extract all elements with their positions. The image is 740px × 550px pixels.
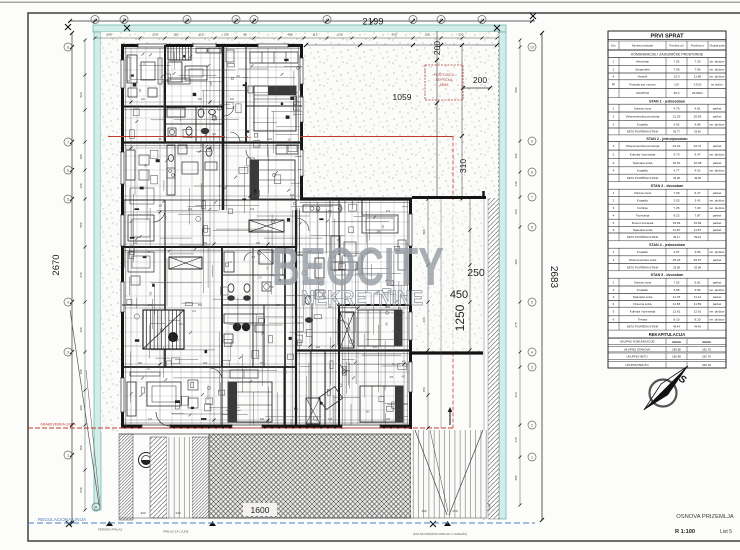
svg-text:8: 8 [531, 170, 533, 174]
svg-text:430: 430 [79, 327, 83, 332]
svg-text:Višenamenska prostorija: Višenamenska prostorija [626, 144, 660, 148]
svg-text:Kupatilo: Kupatilo [637, 122, 648, 126]
svg-text:200: 200 [432, 41, 442, 55]
svg-text:B: B [123, 18, 126, 22]
svg-text:1059: 1059 [393, 92, 412, 102]
svg-text:Dnevna soba: Dnevna soba [633, 302, 652, 306]
svg-text:REGULACIONA LINIJA: REGULACIONA LINIJA [38, 517, 87, 522]
svg-text:192.76: 192.76 [702, 347, 711, 351]
svg-text:305: 305 [198, 98, 203, 101]
svg-text:GRAĐEVINSKA LINIJA: GRAĐEVINSKA LINIJA [40, 423, 76, 427]
svg-text:UKUPNO: UKUPNO [636, 91, 650, 95]
svg-text:UKUPNO BRUTO: UKUPNO BRUTO [625, 363, 649, 367]
svg-text:152: 152 [173, 33, 178, 37]
svg-text:29.80/m: 29.80/m [692, 91, 704, 95]
svg-text:3: 3 [613, 206, 615, 210]
svg-text:1: 1 [613, 250, 615, 254]
svg-text:K: K [440, 18, 443, 22]
svg-text:240.03: 240.03 [702, 363, 711, 367]
svg-text:STAN 5 - dvosoban: STAN 5 - dvosoban [651, 273, 684, 277]
svg-text:4: 4 [531, 350, 533, 354]
svg-text:1: 1 [613, 106, 615, 110]
svg-text:49.38: 49.38 [694, 176, 701, 180]
svg-text:228: 228 [203, 362, 208, 365]
svg-text:520: 520 [79, 92, 83, 97]
svg-text:11.87: 11.87 [673, 228, 681, 232]
svg-text:parket: parket [713, 214, 722, 218]
svg-text:Ozn.: Ozn. [611, 44, 617, 48]
svg-text:ter. pločice: ter. pločice [710, 288, 725, 292]
svg-text:parket: parket [713, 302, 722, 306]
svg-text:133: 133 [250, 208, 255, 211]
svg-text:Kupatilo: Kupatilo [637, 288, 648, 292]
svg-text:6.81: 6.81 [694, 280, 700, 284]
svg-text:2.00: 2.00 [674, 83, 679, 86]
svg-text:6: 6 [67, 168, 69, 172]
svg-text:Vetrobran: Vetrobran [636, 60, 650, 64]
svg-text:6: 6 [531, 225, 533, 229]
svg-text:4.77: 4.77 [673, 169, 679, 173]
svg-text:Ulazna zona: Ulazna zona [634, 280, 651, 284]
svg-text:113: 113 [313, 33, 318, 37]
svg-text:300: 300 [79, 405, 83, 410]
svg-text:59.43: 59.43 [694, 235, 701, 239]
svg-text:3.55: 3.55 [673, 288, 679, 292]
svg-text:176: 176 [148, 418, 153, 421]
svg-text:800: 800 [422, 229, 426, 234]
svg-text:30.77: 30.77 [673, 130, 680, 134]
svg-text:4: 4 [613, 75, 615, 79]
svg-text:Terasa: Terasa [638, 317, 648, 321]
svg-text:49.44: 49.44 [673, 325, 680, 329]
svg-text:430: 430 [391, 33, 396, 37]
svg-text:JAMA: JAMA [439, 83, 449, 87]
svg-text:Površina m2: Površina m2 [669, 44, 684, 48]
svg-text:4: 4 [613, 169, 615, 173]
svg-text:165: 165 [514, 153, 518, 158]
svg-text:ter. pločice: ter. pločice [710, 250, 725, 254]
svg-text:29.60: 29.60 [694, 130, 701, 134]
svg-text:STAN 3 - dvosoban: STAN 3 - dvosoban [651, 184, 684, 188]
svg-text:Višenamenska prostorija: Višenamenska prostorija [626, 114, 660, 118]
svg-text:120: 120 [141, 98, 146, 101]
svg-text:410: 410 [230, 98, 235, 101]
svg-text:4.81: 4.81 [694, 106, 700, 110]
svg-text:364: 364 [203, 242, 208, 245]
svg-text:(KOLSKI PEŠAČKI PRILAZ U GARAŽ: (KOLSKI PEŠAČKI PRILAZ U GARAŽU) [413, 531, 467, 536]
svg-text:150: 150 [421, 509, 426, 513]
svg-text:11.87: 11.87 [694, 228, 702, 232]
svg-text:UKUPNO STANOVA: UKUPNO STANOVA [624, 347, 651, 351]
svg-text:Spavaća soba: Spavaća soba [633, 228, 653, 232]
svg-text:12.0: 12.0 [673, 75, 679, 79]
svg-text:Višenamenska soba: Višenamenska soba [629, 258, 657, 262]
svg-text:6.27: 6.27 [694, 191, 700, 195]
svg-text:110: 110 [133, 242, 138, 245]
svg-text:140: 140 [79, 183, 83, 188]
svg-text:A: A [94, 18, 97, 22]
svg-text:255: 255 [514, 475, 518, 480]
svg-text:2: 2 [531, 423, 533, 427]
svg-text:15.54: 15.54 [673, 221, 681, 225]
svg-text:49.17: 49.17 [673, 235, 680, 239]
svg-text:2: 2 [613, 152, 615, 156]
svg-text:SEPTIČKA: SEPTIČKA [436, 77, 454, 82]
svg-text:ter. pločice: ter. pločice [710, 169, 725, 173]
svg-text:180: 180 [79, 154, 83, 159]
svg-text:10: 10 [530, 45, 534, 49]
svg-text:2: 2 [613, 67, 615, 71]
svg-text:Spavaća soba: Spavaća soba [633, 295, 653, 299]
svg-text:340: 340 [140, 511, 145, 515]
svg-text:318: 318 [276, 304, 281, 307]
svg-text:2: 2 [613, 114, 615, 118]
svg-text:6: 6 [613, 228, 615, 232]
svg-text:196: 196 [148, 304, 153, 307]
svg-text:4.75: 4.75 [673, 106, 679, 110]
svg-text:4: 4 [613, 214, 615, 218]
svg-text:216: 216 [268, 138, 273, 141]
svg-text:21.29: 21.29 [673, 114, 681, 118]
svg-text:432: 432 [373, 346, 378, 349]
svg-text:12.61: 12.61 [694, 310, 702, 314]
svg-text:8: 8 [67, 45, 69, 49]
svg-text:STAN 1 - jednosoban: STAN 1 - jednosoban [649, 100, 685, 104]
svg-text:Kuhinja i trpezarija: Kuhinja i trpezarija [630, 152, 656, 156]
svg-text:J: J [412, 18, 414, 22]
svg-text:Kupatilo: Kupatilo [637, 250, 648, 254]
svg-text:2683: 2683 [548, 266, 559, 289]
svg-text:540: 540 [79, 487, 83, 492]
svg-text:Kupatilo: Kupatilo [637, 169, 648, 173]
svg-text:List 5: List 5 [720, 529, 732, 535]
svg-text:parket: parket [713, 191, 722, 195]
svg-text:390: 390 [514, 259, 518, 264]
svg-text:5: 5 [67, 197, 69, 201]
svg-text:450: 450 [450, 289, 468, 301]
svg-text:Trpezarija: Trpezarija [636, 214, 650, 218]
svg-text:22.47: 22.47 [694, 144, 702, 148]
svg-text:Namena prostorije: Namena prostorije [632, 44, 654, 48]
svg-text:parket: parket [713, 114, 722, 118]
svg-text:5: 5 [613, 221, 615, 225]
svg-text:ter. pločice: ter. pločice [710, 317, 725, 321]
svg-text:1: 1 [613, 191, 615, 195]
svg-text:1: 1 [613, 60, 615, 64]
svg-text:7.09: 7.09 [673, 191, 679, 195]
svg-text:Spavaća soba: Spavaća soba [633, 161, 653, 165]
svg-text:2670: 2670 [51, 254, 62, 275]
svg-text:130: 130 [223, 33, 228, 37]
svg-text:386: 386 [138, 362, 143, 365]
svg-text:3.41: 3.41 [694, 199, 700, 203]
svg-text:452: 452 [198, 304, 203, 307]
svg-text:ter. pločice: ter. pločice [710, 206, 725, 210]
svg-text:KOMUNIKACIJE I ZAJEDNIČKE PROS: KOMUNIKACIJE I ZAJEDNIČKE PROSTORIJE [631, 52, 704, 57]
svg-text:9: 9 [531, 139, 533, 143]
svg-text:1: 1 [531, 455, 533, 459]
svg-text:ter. pločice: ter. pločice [710, 75, 725, 79]
svg-text:195.80: 195.80 [672, 355, 681, 359]
svg-text:240: 240 [175, 511, 180, 515]
svg-text:Ulazna zona: Ulazna zona [634, 191, 651, 195]
svg-text:E: E [253, 18, 256, 22]
svg-text:25.23: 25.23 [673, 258, 681, 262]
svg-text:3.53: 3.53 [673, 199, 679, 203]
svg-text:L: L [481, 18, 483, 22]
svg-text:2.0100: 2.0100 [694, 83, 702, 86]
svg-text:ter. pločice: ter. pločice [710, 67, 725, 71]
svg-text:3: 3 [613, 161, 615, 165]
svg-text:ter. pločice: ter. pločice [710, 152, 725, 156]
svg-text:3: 3 [67, 350, 69, 354]
svg-text:1: 1 [613, 280, 615, 284]
svg-text:ter. pločice: ter. pločice [710, 310, 725, 314]
svg-text:3: 3 [613, 122, 615, 126]
svg-text:170: 170 [514, 437, 518, 442]
svg-text:Obrada poda: Obrada poda [709, 44, 725, 48]
svg-text:238: 238 [256, 242, 261, 245]
svg-text:1: 1 [67, 453, 69, 457]
svg-text:3: 3 [531, 365, 533, 369]
svg-text:7: 7 [67, 140, 69, 144]
svg-text:PRVI SPRAT: PRVI SPRAT [650, 33, 684, 39]
svg-text:11.59: 11.59 [694, 302, 702, 306]
svg-text:35.98: 35.98 [694, 265, 701, 269]
svg-text:4: 4 [613, 302, 615, 306]
svg-text:parket: parket [713, 106, 722, 110]
svg-text:Prostorije prat. namena: Prostorije prat. namena [630, 83, 657, 86]
svg-text:140: 140 [106, 33, 111, 37]
svg-text:UKUPNO NETO: UKUPNO NETO [626, 355, 648, 359]
svg-text:44.46: 44.46 [694, 325, 701, 329]
svg-text:475: 475 [386, 210, 391, 213]
svg-text:7.30: 7.30 [694, 60, 700, 64]
svg-text:Kuhinja: Kuhinja [637, 206, 648, 210]
svg-text:8.22: 8.22 [673, 214, 679, 218]
svg-text:NEKRETNINE: NEKRETNINE [301, 287, 423, 310]
svg-text:96: 96 [243, 33, 247, 37]
svg-text:118: 118 [328, 418, 333, 421]
svg-text:7.66: 7.66 [694, 67, 700, 71]
svg-text:PRILAZ ZA LJUDE: PRILAZ ZA LJUDE [163, 530, 188, 534]
svg-text:150: 150 [260, 362, 265, 365]
svg-text:29.07: 29.07 [694, 258, 702, 262]
svg-text:parket: parket [713, 295, 722, 299]
svg-text:230: 230 [458, 33, 463, 37]
svg-text:115: 115 [199, 33, 204, 37]
svg-text:340: 340 [260, 418, 265, 421]
svg-text:▬▬▬: ▬▬▬ [702, 340, 711, 344]
svg-text:6: 6 [613, 317, 615, 321]
svg-text:1600: 1600 [251, 505, 270, 515]
svg-text:STAN 2 - jednoiposoban: STAN 2 - jednoiposoban [646, 137, 687, 141]
svg-text:11.80: 11.80 [694, 75, 702, 79]
svg-text:24.22: 24.22 [673, 144, 681, 148]
svg-text:192.76: 192.76 [702, 355, 711, 359]
svg-text:2: 2 [613, 199, 615, 203]
svg-text:3.50: 3.50 [694, 288, 700, 292]
svg-text:4: 4 [67, 300, 69, 304]
svg-text:11.41: 11.41 [694, 295, 702, 299]
svg-text:7: 7 [531, 195, 533, 199]
svg-text:PEŠAČKI PRILAZ: PEŠAČKI PRILAZ [98, 527, 123, 532]
svg-text:10.38: 10.38 [694, 161, 702, 165]
svg-text:195.80: 195.80 [672, 347, 681, 351]
svg-text:5: 5 [531, 300, 533, 304]
svg-text:Površina st.: Površina st. [691, 44, 705, 48]
svg-text:Ulazna zona: Ulazna zona [634, 106, 651, 110]
svg-text:parket: parket [713, 144, 722, 148]
svg-text:ter. pločice: ter. pločice [710, 199, 725, 203]
svg-text:3: 3 [613, 295, 615, 299]
svg-text:8.10: 8.10 [673, 317, 679, 321]
svg-text:4.92: 4.92 [673, 122, 679, 126]
svg-text:7.87: 7.87 [694, 214, 700, 218]
svg-text:12.61: 12.61 [673, 310, 681, 314]
svg-text:ter. pločice: ter. pločice [710, 122, 725, 126]
svg-text:275: 275 [514, 322, 518, 327]
svg-text:parket: parket [713, 221, 722, 225]
svg-text:130: 130 [152, 33, 157, 37]
svg-text:7.90: 7.90 [673, 67, 679, 71]
svg-text:▬▬▬: ▬▬▬ [672, 340, 681, 344]
svg-text:parket: parket [713, 258, 722, 262]
svg-text:4.85: 4.85 [694, 250, 700, 254]
svg-text:450: 450 [287, 33, 292, 37]
svg-text:7.02: 7.02 [673, 60, 679, 64]
svg-text:310: 310 [514, 392, 518, 397]
svg-text:7.25: 7.25 [673, 206, 679, 210]
svg-text:150: 150 [422, 387, 426, 392]
svg-text:270: 270 [79, 272, 83, 277]
svg-text:8.10: 8.10 [694, 317, 700, 321]
svg-text:parket: parket [713, 280, 722, 284]
svg-text:200: 200 [473, 75, 487, 85]
svg-text:500: 500 [514, 87, 518, 92]
svg-text:2199: 2199 [362, 17, 383, 28]
svg-text:ter. pločice: ter. pločice [710, 60, 725, 64]
svg-text:2: 2 [613, 288, 615, 292]
svg-text:11.83: 11.83 [673, 302, 681, 306]
svg-text:29.98: 29.98 [673, 265, 680, 269]
svg-text:230: 230 [452, 509, 457, 513]
svg-text:160: 160 [514, 209, 518, 214]
svg-text:parket: parket [713, 161, 722, 165]
svg-text:C: C [186, 18, 189, 22]
svg-text:1250: 1250 [453, 304, 467, 331]
svg-text:4.87: 4.87 [673, 250, 679, 254]
svg-text:130: 130 [337, 33, 342, 37]
svg-text:150: 150 [79, 445, 83, 450]
svg-text:325: 325 [328, 210, 333, 213]
svg-text:30.4: 30.4 [673, 91, 679, 95]
svg-text:9.47: 9.47 [694, 152, 700, 156]
svg-text:Kuhinja i trpezarija: Kuhinja i trpezarija [630, 310, 656, 314]
svg-text:REKAPITULACIJA: REKAPITULACIJA [649, 332, 686, 337]
svg-text:7.03: 7.03 [694, 206, 700, 210]
svg-text:PP: PP [612, 83, 616, 86]
svg-text:Stepenište: Stepenište [635, 67, 650, 71]
svg-text:D: D [235, 18, 238, 22]
svg-text:parket: parket [713, 228, 722, 232]
svg-text:550: 550 [79, 222, 83, 227]
svg-text:10.51: 10.51 [673, 161, 681, 165]
svg-text:2: 2 [613, 258, 615, 262]
svg-text:140: 140 [514, 181, 518, 186]
svg-text:ter. pločice: ter. pločice [711, 83, 724, 86]
svg-text:49.08: 49.08 [673, 176, 680, 180]
svg-text:9.70: 9.70 [673, 152, 679, 156]
svg-text:294: 294 [316, 346, 321, 349]
svg-text:Hodnik: Hodnik [638, 75, 648, 79]
svg-text:310: 310 [422, 317, 426, 322]
svg-text:4.63: 4.63 [694, 169, 700, 173]
svg-text:1: 1 [613, 144, 615, 148]
svg-text:4.88: 4.88 [694, 122, 700, 126]
svg-text:OSNOVA PRIZEMLJA: OSNOVA PRIZEMLJA [676, 514, 734, 520]
svg-text:Kupatilo: Kupatilo [637, 199, 648, 203]
svg-text:11.76: 11.76 [673, 295, 681, 299]
svg-text:7.02: 7.02 [673, 280, 679, 284]
svg-text:461: 461 [188, 208, 193, 211]
svg-text:UKUPNO KOMUNIKACIJE: UKUPNO KOMUNIKACIJE [620, 340, 655, 344]
svg-text:STAN 4 - jednosoban: STAN 4 - jednosoban [649, 243, 685, 247]
svg-text:15.84: 15.84 [694, 221, 702, 225]
svg-text:R 1:100: R 1:100 [675, 529, 695, 535]
svg-text:20.56: 20.56 [694, 114, 702, 118]
svg-text:Dnevni boravak: Dnevni boravak [632, 221, 654, 225]
svg-text:5: 5 [613, 310, 615, 314]
svg-text:310: 310 [458, 159, 468, 173]
svg-text:150: 150 [424, 33, 429, 37]
svg-text:A: A [95, 505, 98, 509]
svg-text:266: 266 [386, 418, 391, 421]
